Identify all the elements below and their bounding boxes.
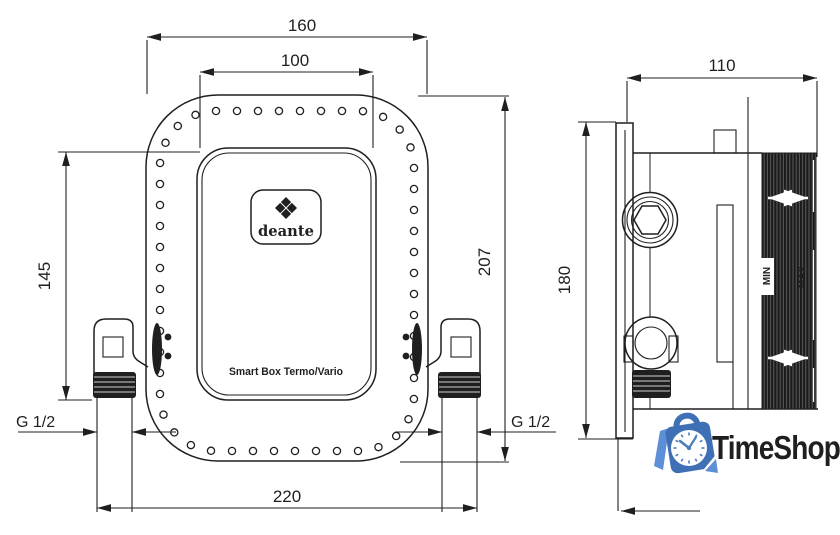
dim-height-left: 145 bbox=[35, 152, 200, 400]
hex-nut-icon bbox=[634, 206, 666, 234]
front-view: deante Smart Box Termo/Vario bbox=[16, 16, 556, 512]
right-bracket-hole bbox=[451, 337, 471, 357]
dim-label-110: 110 bbox=[708, 56, 735, 75]
gasket-right bbox=[412, 323, 422, 375]
right-elbow-outline bbox=[426, 319, 480, 375]
watermark-logo: TimeShop bbox=[654, 412, 840, 476]
watermark-wordmark: TimeShop bbox=[712, 429, 840, 466]
right-bracket bbox=[426, 319, 481, 512]
dim-label-145: 145 bbox=[35, 262, 54, 290]
clock-icon bbox=[671, 430, 707, 466]
fixing-hole-filled bbox=[403, 334, 410, 341]
dim-total-width: 220 bbox=[97, 487, 477, 508]
max-label: MAX bbox=[797, 266, 808, 289]
min-label: MIN bbox=[762, 267, 773, 285]
dim-depth: 110 bbox=[627, 56, 817, 157]
cover-outline bbox=[197, 148, 376, 400]
left-thread-nipple bbox=[93, 372, 136, 398]
top-tab bbox=[714, 130, 736, 153]
hex-nut-port bbox=[623, 193, 678, 248]
thread-label-left: G 1/2 bbox=[16, 414, 55, 431]
flange-outline bbox=[146, 95, 428, 461]
fixing-hole-filled bbox=[403, 353, 410, 360]
mounting-holes-ring bbox=[156, 107, 417, 454]
left-bracket bbox=[93, 319, 148, 512]
threaded-sleeve: MIN MAX bbox=[758, 153, 816, 409]
fixing-hole-filled bbox=[165, 334, 172, 341]
thread-label-right: G 1/2 bbox=[511, 414, 550, 431]
dim-label-100: 100 bbox=[281, 51, 309, 70]
dim-label-180: 180 bbox=[555, 266, 574, 294]
left-bracket-hole bbox=[103, 337, 123, 357]
dim-label-160: 160 bbox=[288, 16, 316, 35]
brand-name: deante bbox=[258, 222, 314, 240]
deante-logo: deante bbox=[251, 190, 321, 244]
left-elbow-outline bbox=[94, 319, 148, 375]
side-plate bbox=[717, 205, 733, 362]
dim-label-207: 207 bbox=[475, 248, 494, 276]
dim-height: 180 bbox=[555, 122, 633, 439]
technical-drawing-page: deante Smart Box Termo/Vario bbox=[0, 0, 840, 535]
fixing-hole-filled bbox=[165, 353, 172, 360]
side-thread-nipple bbox=[632, 370, 671, 398]
gasket-left bbox=[152, 323, 162, 375]
dim-height-right: 207 bbox=[400, 96, 509, 462]
dim-label-220: 220 bbox=[273, 487, 301, 506]
dim-cover-width: 100 bbox=[200, 51, 373, 148]
technical-drawing: deante Smart Box Termo/Vario bbox=[0, 0, 840, 535]
right-thread-nipple bbox=[438, 372, 481, 398]
product-label: Smart Box Termo/Vario bbox=[229, 366, 343, 378]
elbow-fitting bbox=[624, 317, 678, 398]
